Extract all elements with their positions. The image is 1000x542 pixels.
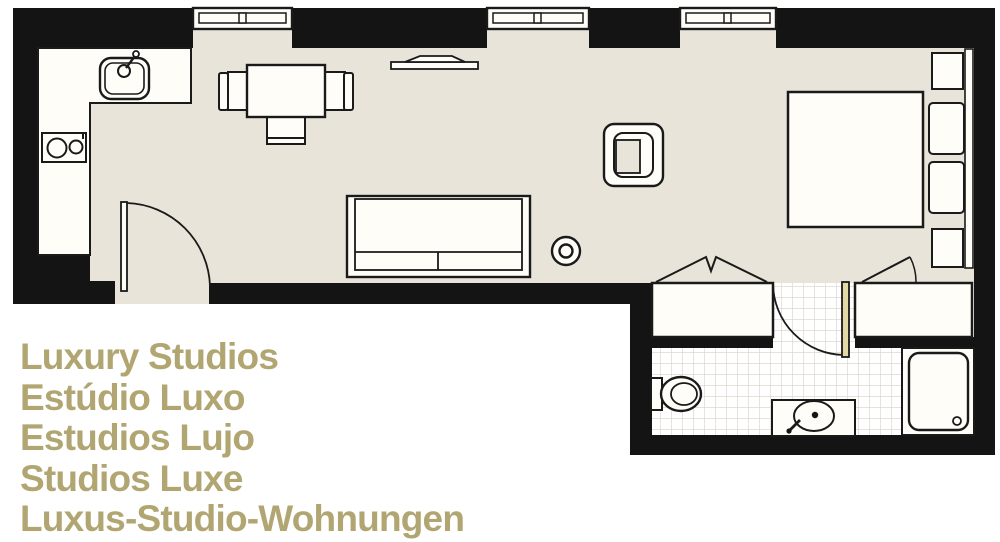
entry-floor [115, 281, 209, 304]
caption-line-spanish: Estudios Lujo [20, 417, 254, 458]
window-divider [239, 13, 246, 23]
pillow-bottom [929, 162, 964, 213]
armchair-seat-notch [616, 140, 640, 173]
tv-shelf-bar [391, 62, 478, 69]
wardrobe-left [652, 283, 773, 337]
wardrobe-divider-wall-right [855, 337, 995, 348]
headboard [965, 49, 973, 268]
bottom-wall-mid [209, 281, 652, 304]
pillow-top [929, 103, 964, 154]
bathroom-left-wall [630, 281, 652, 455]
kitchen-side-floor [90, 103, 191, 281]
stove-two-burner [42, 133, 86, 162]
window-bay-floor-1 [193, 28, 292, 48]
caption-line-english: Luxury Studios [20, 336, 278, 377]
caption-line-french: Studios Luxe [20, 458, 243, 499]
side-table [552, 237, 580, 265]
floor-plan: Luxury Studios Estúdio Luxo Estudios Luj… [0, 0, 1000, 542]
dining-chair-right-seat [325, 72, 345, 110]
dining-chair-bottom-seat [267, 117, 305, 144]
caption-line-portuguese: Estúdio Luxo [20, 377, 245, 418]
under-kitchen-wall [36, 253, 90, 304]
window-2 [487, 8, 589, 29]
entry-door-leaf [121, 202, 127, 291]
window-1 [193, 8, 292, 29]
dining-chair-left-back [219, 73, 228, 110]
shower-base [902, 348, 974, 435]
bathroom-door-leaf [842, 282, 849, 357]
faucet-knob-icon [133, 51, 139, 57]
dining-table [247, 65, 325, 117]
nightstand-top [932, 53, 963, 89]
wardrobe-right [855, 283, 972, 337]
dining-chair-right-back [344, 73, 353, 110]
window-bay-floor-2 [487, 28, 589, 48]
window-divider [724, 13, 731, 23]
washbasin-faucet-knob [786, 428, 791, 433]
toilet-bowl [661, 377, 701, 411]
dining-chair-left-seat [228, 72, 248, 110]
window-3 [680, 8, 776, 29]
caption-line-german: Luxus-Studio-Wohnungen [20, 498, 464, 539]
floor-plan-page: Luxury Studios Estúdio Luxo Estudios Luj… [0, 0, 1000, 542]
caption-block: Luxury Studios Estúdio Luxo Estudios Luj… [20, 336, 464, 539]
window-bay-floor-3 [680, 28, 776, 48]
left-wall [13, 8, 38, 304]
washbasin-drain [812, 412, 818, 418]
bathroom-bottom-wall [630, 435, 995, 455]
window-divider [534, 13, 541, 23]
nightstand-bottom [932, 229, 963, 267]
double-bed [788, 92, 923, 227]
right-wall [974, 8, 995, 455]
wardrobe-divider-wall-left [630, 337, 773, 348]
